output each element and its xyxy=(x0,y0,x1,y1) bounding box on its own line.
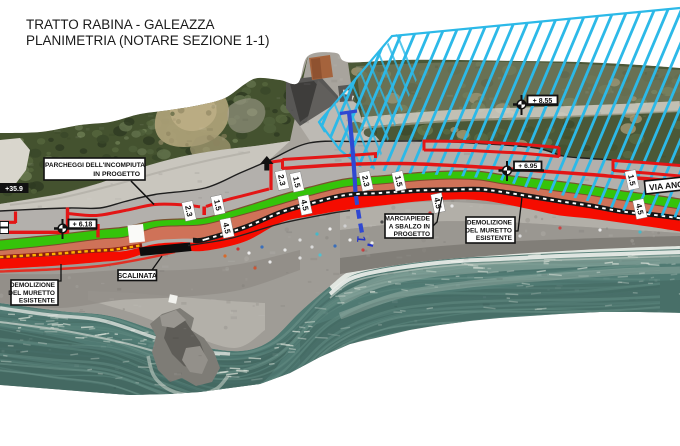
svg-text:ESISTENTE: ESISTENTE xyxy=(476,235,513,242)
svg-text:DEL MURETTO: DEL MURETTO xyxy=(465,227,512,234)
svg-text:ESISTENTE: ESISTENTE xyxy=(19,298,56,305)
svg-text:+ 6.95: + 6.95 xyxy=(518,163,537,170)
svg-text:IN PROGETTO: IN PROGETTO xyxy=(93,171,140,178)
svg-text:PARCHEGGI DELL'INCOMPIUTA: PARCHEGGI DELL'INCOMPIUTA xyxy=(45,162,145,169)
svg-text:DEMOLIZIONE: DEMOLIZIONE xyxy=(10,282,56,289)
svg-text:SCALINATA: SCALINATA xyxy=(117,273,156,280)
svg-text:MARCIAPIEDE: MARCIAPIEDE xyxy=(384,216,430,223)
svg-text:+35.9: +35.9 xyxy=(5,186,23,193)
svg-text:PLANIMETRIA (NOTARE SEZIONE 1-: PLANIMETRIA (NOTARE SEZIONE 1-1) xyxy=(26,33,270,48)
svg-text:TRATTO RABINA - GALEAZZA: TRATTO RABINA - GALEAZZA xyxy=(26,17,215,32)
svg-text:PROGETTO: PROGETTO xyxy=(394,231,430,238)
svg-text:A SBALZO IN: A SBALZO IN xyxy=(389,223,431,230)
svg-text:DEMOLIZIONE: DEMOLIZIONE xyxy=(467,220,513,227)
svg-text:DEL MURETTO: DEL MURETTO xyxy=(8,290,55,297)
